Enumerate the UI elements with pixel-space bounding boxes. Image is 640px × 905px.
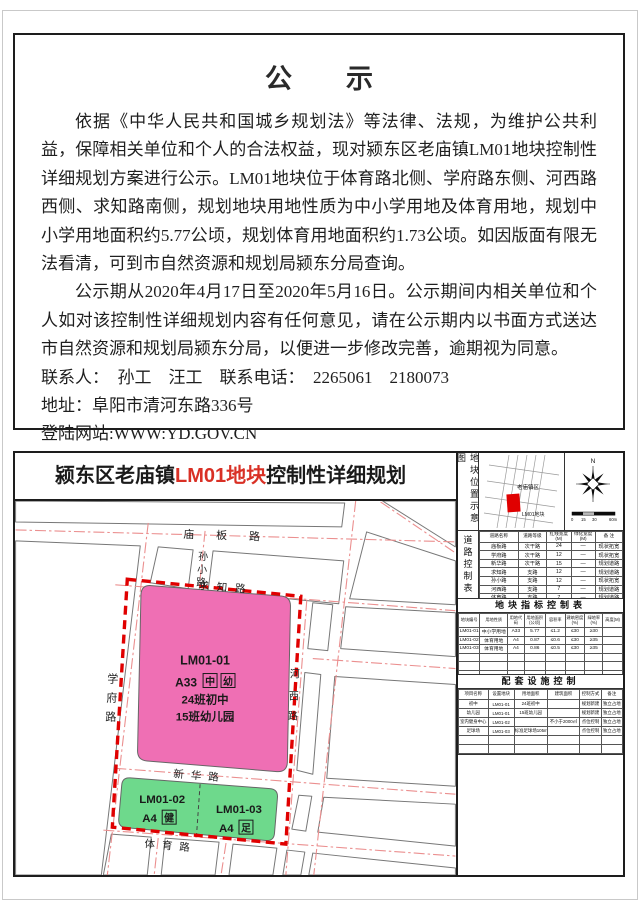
table-cell: 现状拓宽 <box>595 577 622 586</box>
plan-title: 颍东区老庙镇LM01地块控制性详细规划 <box>15 453 456 501</box>
table-cell: 建筑密度(%) <box>565 614 585 628</box>
table-cell <box>580 736 601 745</box>
table-cell: A4 <box>508 645 524 654</box>
table-cell <box>603 653 623 662</box>
road-table-head: 道路名称道路等级红线宽度(M)绿化宽度(M)备 注 <box>480 532 623 543</box>
table-cell: 地块编号 <box>459 614 480 628</box>
table-cell <box>580 745 601 754</box>
table-cell: 室内健身中心 <box>459 718 489 727</box>
table-cell <box>580 754 601 756</box>
table-cell: 不小于2000㎡ <box>547 718 580 727</box>
table-cell: — <box>571 559 595 568</box>
parcel-1-box1: 中 <box>205 675 215 688</box>
table-cell: ≤0.6 <box>545 636 565 645</box>
road-label-sunxiao-1: 孙 <box>198 550 208 563</box>
table-cell <box>524 662 545 671</box>
table-cell: 幼儿园 <box>459 709 489 718</box>
table-row: 初中LM01-0124班初中规划新建独立占地 <box>459 700 623 709</box>
table-cell <box>585 662 603 671</box>
index-table-head: 地块编号用地性质用地代码用地面积(公顷)容积率建筑密度(%)绿地率(%)高度(M… <box>459 614 623 628</box>
notice-paragraph-2: 公示期从2020年4月17日至2020年5月16日。公示期间内相关单位和个人如对… <box>15 278 623 363</box>
road-label-hexi-3: 路 <box>288 709 298 722</box>
parcel-2-box: 健 <box>164 812 174 825</box>
table-row <box>459 662 623 671</box>
table-cell: — <box>571 585 595 594</box>
parcel-3-box: 足 <box>241 823 251 835</box>
table-cell: 次干路 <box>518 551 547 560</box>
table-cell: 次干路 <box>518 542 547 551</box>
road-table-wrap: 道路名称道路等级红线宽度(M)绿化宽度(M)备 注 庙板路次干路24—现状拓宽学… <box>479 531 623 598</box>
location-minimap: 老庙镇区 LM01地块 <box>479 453 565 530</box>
facility-table-title: 配套设施控制 <box>458 675 623 689</box>
scale-labels: 0 15 30 60m <box>571 517 618 522</box>
road-table-vertical-label-text: 道路控制表 <box>462 535 475 595</box>
table-cell: 用地代码 <box>508 614 524 628</box>
table-cell: 备注 <box>601 690 622 700</box>
table-row: LM01-01中小学用地A335.77≤1.2≤30≥30 <box>459 628 623 637</box>
table-cell: 0.86 <box>524 645 545 654</box>
parcel-1-code: A33 <box>175 676 197 690</box>
table-cell: 12 <box>547 568 571 577</box>
table-cell <box>547 700 580 709</box>
table-cell <box>459 653 480 662</box>
table-cell: 规划道路 <box>595 585 622 594</box>
table-row: 新华路次干路15—规划道路 <box>480 559 623 568</box>
table-cell: 用地性质 <box>480 614 508 628</box>
table-cell <box>603 662 623 671</box>
table-cell <box>601 745 622 754</box>
table-cell: 规划道路 <box>595 559 622 568</box>
table-cell <box>459 754 489 756</box>
plan-map-column: 颍东区老庙镇LM01地块控制性详细规划 <box>15 453 456 875</box>
minimap-plot-label: LM01地块 <box>522 511 545 518</box>
table-row: 求知路支路12—规划道路 <box>480 568 623 577</box>
table-cell: — <box>571 577 595 586</box>
table-row <box>459 754 623 756</box>
scale-label-1: 15 <box>581 517 586 522</box>
table-cell: LM01-02 <box>459 636 480 645</box>
parcel-1-id: LM01-01 <box>180 654 230 668</box>
table-cell <box>603 636 623 645</box>
address-line: 地址：阜阳市清河东路336号 <box>15 392 623 420</box>
public-notice-page: 公 示 依据《中华人民共和国城乡规划法》等法律、法规，为维护公共利益，保障相关单… <box>0 0 640 905</box>
table-cell <box>547 745 580 754</box>
table-cell: 独立占地 <box>601 727 622 736</box>
table-row <box>459 745 623 754</box>
table-cell: ≤30 <box>565 636 585 645</box>
compass-svg: N 0 15 30 60m <box>565 453 622 530</box>
table-cell: 15班幼儿园 <box>514 709 547 718</box>
table-cell: 规划新建 <box>580 709 601 718</box>
table-row: 地块编号用地性质用地代码用地面积(公顷)容积率建筑密度(%)绿地率(%)高度(M… <box>459 614 623 628</box>
table-cell: A33 <box>508 628 524 637</box>
table-row: LM01-03体育用地A40.86≤0.5≤30≥35 <box>459 645 623 654</box>
table-cell: 独立占地 <box>601 718 622 727</box>
table-cell <box>547 709 580 718</box>
table-cell: 24 <box>547 542 571 551</box>
parcel-3-code: A4 <box>219 823 234 835</box>
plan-title-suffix: 控制性详细规划 <box>266 465 406 487</box>
table-cell <box>603 645 623 654</box>
table-row: 孙小路支路12—现状拓宽 <box>480 577 623 586</box>
table-cell <box>565 662 585 671</box>
table-cell: ≥35 <box>585 636 603 645</box>
scale-bar <box>572 512 615 515</box>
table-cell <box>603 628 623 637</box>
table-cell: ≤0.5 <box>545 645 565 654</box>
info-panel: 地块位置示意图 <box>456 453 623 875</box>
table-cell: 新华路 <box>480 559 519 568</box>
website-line: 登陆网站:WWW:YD.GOV.CN <box>15 420 623 448</box>
table-cell: 河西路 <box>480 585 519 594</box>
table-cell: 控制方式 <box>580 690 601 700</box>
table-cell: — <box>571 542 595 551</box>
table-cell: 7 <box>547 585 571 594</box>
parcel-2-code: A4 <box>142 813 157 825</box>
road-table: 道路名称道路等级红线宽度(M)绿化宽度(M)备 注 庙板路次干路24—现状拓宽学… <box>479 531 623 599</box>
parcel-1-box2: 幼 <box>223 675 233 688</box>
table-row: 道路名称道路等级红线宽度(M)绿化宽度(M)备 注 <box>480 532 623 543</box>
table-cell: 独立占地 <box>601 709 622 718</box>
table-cell: 5.77 <box>524 628 545 637</box>
plan-map: 庙板路 孙 小 路 求知路 学 府 路 河 西 路 新华路 体育路 <box>15 501 456 875</box>
table-cell: 独立占地 <box>601 700 622 709</box>
facility-table-head: 项目名称设置地块用地面积建筑面积控制方式备注 <box>459 690 623 700</box>
parcel-1-line1: 24班初中 <box>182 692 229 706</box>
table-cell <box>565 653 585 662</box>
table-cell: 道路等级 <box>518 532 547 543</box>
road-label-xuefu-2: 府 <box>106 690 117 704</box>
table-cell: 初中 <box>459 700 489 709</box>
plan-map-svg: 庙板路 孙 小 路 求知路 学 府 路 河 西 路 新华路 体育路 <box>15 501 456 875</box>
table-cell: 绿地率(%) <box>585 614 603 628</box>
table-cell: 24班初中 <box>514 700 547 709</box>
index-table-body: LM01-01中小学用地A335.77≤1.2≤30≥30LM01-02体育用地… <box>459 628 623 676</box>
table-cell <box>545 662 565 671</box>
table-row: 足球场LM01-03标准足球场105m×68m点位控制独立占地 <box>459 727 623 736</box>
table-row: 学府路次干路12—现状拓宽 <box>480 551 623 560</box>
parcel-3-id: LM01-03 <box>216 804 262 816</box>
table-cell <box>514 745 547 754</box>
facility-table: 项目名称设置地块用地面积建筑面积控制方式备注 初中LM01-0124班初中规划新… <box>458 689 623 755</box>
table-cell: 项目名称 <box>459 690 489 700</box>
table-cell: 用地面积 <box>514 690 547 700</box>
table-cell <box>545 653 565 662</box>
table-row: 幼儿园LM01-0115班幼儿园规划新建独立占地 <box>459 709 623 718</box>
table-cell <box>601 736 622 745</box>
table-cell: 标准足球场105m×68m <box>514 727 547 736</box>
table-cell <box>508 662 524 671</box>
table-cell <box>480 662 508 671</box>
table-row: 河西路支路7—规划道路 <box>480 585 623 594</box>
table-cell: LM01-02 <box>488 718 514 727</box>
table-cell: LM01-01 <box>459 628 480 637</box>
table-cell: 设置地块 <box>488 690 514 700</box>
table-cell <box>480 653 508 662</box>
table-cell: 道路名称 <box>480 532 519 543</box>
table-row: 室内健身中心LM01-02不小于2000㎡点位控制独立占地 <box>459 718 623 727</box>
table-cell <box>488 736 514 745</box>
table-cell <box>488 745 514 754</box>
table-cell: ≥35 <box>585 645 603 654</box>
notice-box: 公 示 依据《中华人民共和国城乡规划法》等法律、法规，为维护公共利益，保障相关单… <box>13 33 625 430</box>
table-cell: 中小学用地 <box>480 628 508 637</box>
table-cell: 现状拓宽 <box>595 551 622 560</box>
table-row: LM01-02体育用地A40.87≤0.6≤30≥35 <box>459 636 623 645</box>
scale-label-3: 60m <box>609 517 618 522</box>
road-label-xuefu-1: 学 <box>107 672 118 686</box>
location-vertical-label-text: 地块位置示意图 <box>458 453 481 530</box>
table-cell <box>601 754 622 756</box>
table-cell: 红线宽度(M) <box>547 532 571 543</box>
table-cell: 支路 <box>518 585 547 594</box>
index-table-title: 地块指标控制表 <box>458 599 623 613</box>
table-cell: 建筑面积 <box>547 690 580 700</box>
table-cell: LM01-03 <box>488 727 514 736</box>
table-cell: 足球场 <box>459 727 489 736</box>
table-cell: 绿化宽度(M) <box>571 532 595 543</box>
table-cell <box>547 736 580 745</box>
table-cell: 点位控制 <box>580 718 601 727</box>
parcel-2-id: LM01-02 <box>139 794 185 806</box>
table-cell: ≤30 <box>565 628 585 637</box>
table-cell: LM01-01 <box>488 700 514 709</box>
table-cell: 用地面积(公顷) <box>524 614 545 628</box>
table-row: 项目名称设置地块用地面积建筑面积控制方式备注 <box>459 690 623 700</box>
table-cell: A4 <box>508 636 524 645</box>
table-cell: 庙板路 <box>480 542 519 551</box>
table-cell <box>459 745 489 754</box>
table-row <box>459 736 623 745</box>
table-cell: — <box>571 551 595 560</box>
table-cell: 高度(M) <box>603 614 623 628</box>
table-cell: 现状拓宽 <box>595 542 622 551</box>
table-cell: 备 注 <box>595 532 622 543</box>
table-cell: 体育用地 <box>480 636 508 645</box>
table-cell: ≥30 <box>585 628 603 637</box>
table-cell: 学府路 <box>480 551 519 560</box>
table-cell <box>547 754 580 756</box>
table-cell <box>547 727 580 736</box>
location-vertical-label: 地块位置示意图 <box>458 453 479 530</box>
notice-paragraph-1: 依据《中华人民共和国城乡规划法》等法律、法规，为维护公共利益，保障相关单位和个人… <box>15 108 623 278</box>
road-label-xuefu-3: 路 <box>105 710 116 723</box>
road-label-sunxiao-2: 小 <box>197 564 207 576</box>
plan-box: 颍东区老庙镇LM01地块控制性详细规划 <box>13 451 625 877</box>
table-cell: 孙小路 <box>480 577 519 586</box>
table-cell <box>514 736 547 745</box>
index-table-row: 地块编号用地性质用地代码用地面积(公顷)容积率建筑密度(%)绿地率(%)高度(M… <box>458 613 623 675</box>
table-cell <box>459 736 489 745</box>
table-cell <box>514 718 547 727</box>
table-cell: 求知路 <box>480 568 519 577</box>
road-table-row: 道路控制表 道路名称道路等级红线宽度(M)绿化宽度(M)备 注 庙板路次干路24… <box>458 531 623 599</box>
road-table-body: 庙板路次干路24—现状拓宽学府路次干路12—现状拓宽新华路次干路15—规划道路求… <box>480 542 623 599</box>
table-cell: 规划新建 <box>580 700 601 709</box>
table-cell: 支路 <box>518 568 547 577</box>
table-cell: 支路 <box>518 577 547 586</box>
plan-title-plot-code: LM01地块 <box>175 465 266 487</box>
facility-table-body: 初中LM01-0124班初中规划新建独立占地幼儿园LM01-0115班幼儿园规划… <box>459 700 623 756</box>
table-cell <box>459 662 480 671</box>
table-cell: 点位控制 <box>580 727 601 736</box>
scale-label-0: 0 <box>571 517 574 522</box>
table-cell: 容积率 <box>545 614 565 628</box>
contact-line: 联系人： 孙工 汪工 联系电话： 2265061 2180073 <box>15 364 623 392</box>
table-cell: — <box>571 568 595 577</box>
table-cell: 规划道路 <box>595 568 622 577</box>
table-cell: 0.87 <box>524 636 545 645</box>
scale-label-2: 30 <box>592 517 597 522</box>
plan-title-prefix: 颍东区老庙镇 <box>55 465 175 487</box>
table-row: 庙板路次干路24—现状拓宽 <box>480 542 623 551</box>
table-cell: ≤30 <box>565 645 585 654</box>
minimap-svg: 老庙镇区 LM01地块 <box>479 453 564 530</box>
table-cell: 12 <box>547 577 571 586</box>
table-cell: ≤1.2 <box>545 628 565 637</box>
table-cell <box>524 653 545 662</box>
table-cell <box>585 653 603 662</box>
table-cell <box>488 754 514 756</box>
table-cell: 15 <box>547 559 571 568</box>
table-cell <box>508 653 524 662</box>
notice-title: 公 示 <box>15 57 623 96</box>
road-label-miaoban: 庙板路 <box>183 527 282 544</box>
table-cell: LM01-01 <box>488 709 514 718</box>
road-label-hexi-1: 河 <box>290 669 300 681</box>
table-cell: 12 <box>547 551 571 560</box>
compass-scale-cell: N 0 15 30 60m <box>565 453 623 530</box>
table-cell: 次干路 <box>518 559 547 568</box>
table-cell: LM01-03 <box>459 645 480 654</box>
compass-north-label: N <box>591 458 596 465</box>
table-row <box>459 653 623 662</box>
table-cell <box>514 754 547 756</box>
index-table: 地块编号用地性质用地代码用地面积(公顷)容积率建筑密度(%)绿地率(%)高度(M… <box>458 613 623 675</box>
location-row: 地块位置示意图 <box>458 453 623 531</box>
facility-table-row: 项目名称设置地块用地面积建筑面积控制方式备注 初中LM01-0124班初中规划新… <box>458 689 623 755</box>
minimap-town-label: 老庙镇区 <box>517 483 540 491</box>
table-cell: 体育用地 <box>480 645 508 654</box>
parcel-1-line2: 15班幼儿园 <box>176 709 235 723</box>
road-table-vertical-label: 道路控制表 <box>458 531 479 598</box>
minimap-plot-marker <box>506 494 520 513</box>
road-label-hexi-2: 西 <box>289 691 299 702</box>
